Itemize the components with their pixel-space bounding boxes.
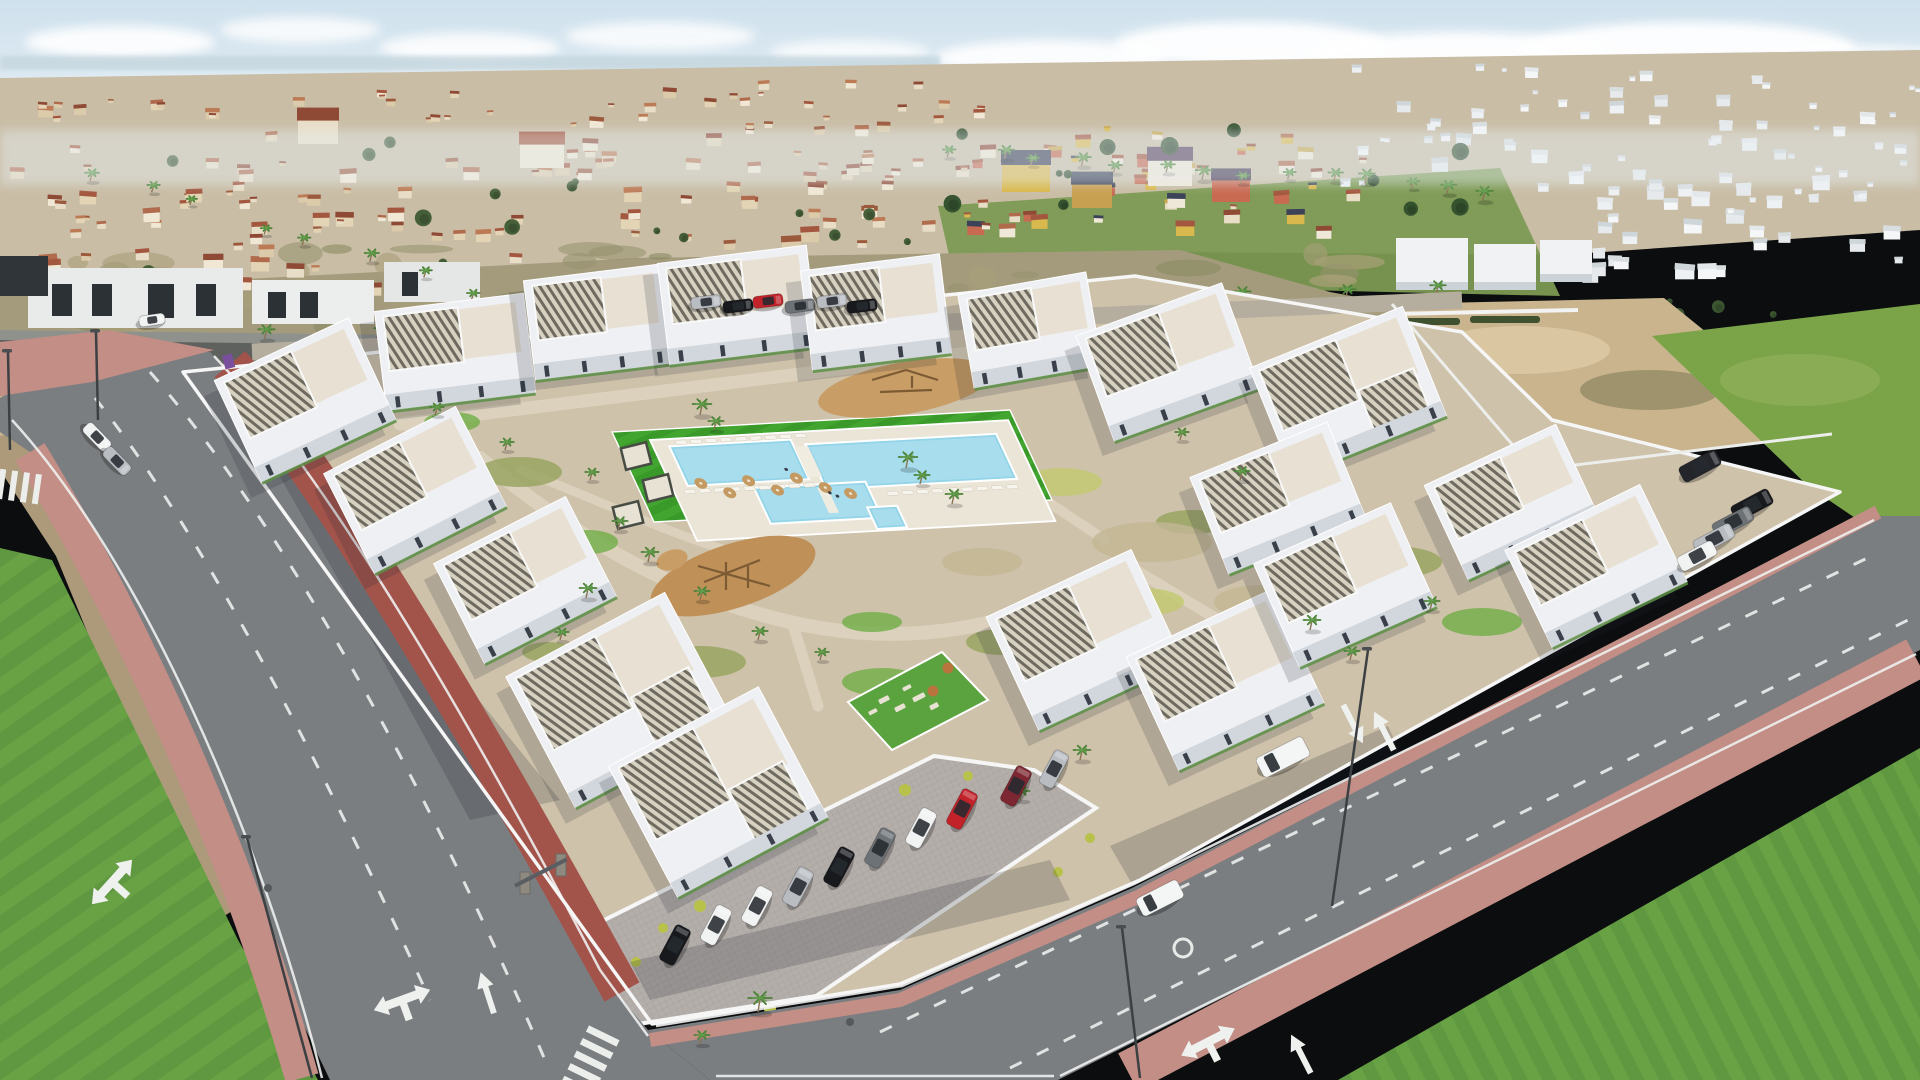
palm-shadow <box>1346 660 1360 665</box>
town-roof <box>1286 209 1305 215</box>
sun-lounger <box>916 489 929 494</box>
road-arrow-straight <box>1284 1031 1319 1077</box>
town-house <box>157 104 164 108</box>
town-house <box>1850 243 1865 252</box>
town-house <box>250 237 262 244</box>
town-roof <box>387 207 404 212</box>
town-house <box>759 84 770 90</box>
hedge <box>1470 316 1540 323</box>
town-house <box>313 217 329 226</box>
sun-lounger <box>758 485 771 490</box>
tree-shade <box>656 230 660 234</box>
town-roof <box>1613 257 1629 262</box>
palm-shadow <box>1236 480 1250 485</box>
town-house <box>1608 216 1618 222</box>
shrub <box>658 923 668 933</box>
town-house <box>978 202 987 207</box>
town-house <box>233 185 244 191</box>
palm-shadow <box>947 504 963 509</box>
warehouse-unit <box>0 256 48 296</box>
sun-lounger <box>779 434 792 439</box>
town-house <box>1814 127 1819 130</box>
streetlight-head <box>1362 647 1372 651</box>
sun-lounger <box>683 489 696 494</box>
sun-lounger <box>886 491 899 496</box>
town-house <box>624 192 641 202</box>
town-roof <box>1691 191 1710 198</box>
town-house <box>298 197 307 202</box>
town-house <box>846 82 856 88</box>
town-roof <box>939 100 950 104</box>
cloud <box>25 26 215 58</box>
town-roof <box>978 199 988 203</box>
town-roof <box>1472 122 1487 127</box>
town-roof <box>81 253 91 256</box>
palm-shadow <box>366 261 379 265</box>
town-roof <box>1756 120 1768 124</box>
town-roof <box>1622 232 1637 237</box>
shrub <box>694 900 706 912</box>
parasol <box>943 663 954 674</box>
palm-shadow <box>1478 200 1494 205</box>
town-roof <box>855 125 869 129</box>
town-roof <box>1629 76 1636 78</box>
scrub-patch <box>1309 274 1357 287</box>
town-roof <box>186 188 203 194</box>
town-house <box>1630 78 1636 81</box>
town-house <box>1176 225 1194 236</box>
town-roof <box>250 197 257 199</box>
parasol <box>928 686 939 697</box>
town-house <box>1795 190 1802 194</box>
town-house <box>1476 66 1484 71</box>
town-house <box>999 228 1015 237</box>
shrub <box>963 771 973 781</box>
town-roof <box>877 122 891 126</box>
town-roof <box>729 93 737 95</box>
town-roof <box>335 212 354 218</box>
town-house <box>609 105 614 108</box>
town-house <box>1698 268 1716 279</box>
town-house <box>386 101 395 106</box>
town-roof <box>313 213 330 218</box>
town-roof <box>1223 210 1240 216</box>
town-roof <box>638 114 648 117</box>
town-roof <box>1397 101 1412 106</box>
town-house <box>1750 229 1764 237</box>
town-house <box>227 192 233 195</box>
palm-shadow <box>149 192 161 196</box>
town-house <box>1767 199 1782 208</box>
town-roof <box>386 99 396 102</box>
manhole <box>264 884 272 892</box>
town-roof <box>764 121 773 124</box>
town-roof <box>226 190 233 192</box>
sun-lounger <box>764 435 777 440</box>
town-roof <box>1883 225 1901 231</box>
town-house <box>645 106 656 112</box>
tree-shade <box>570 184 576 190</box>
town-house <box>180 203 190 209</box>
town-house <box>1521 107 1529 112</box>
town-house <box>392 225 403 232</box>
sun-lounger <box>690 439 703 444</box>
town-house <box>1581 114 1590 119</box>
town-roof <box>1814 126 1820 128</box>
town-house <box>746 125 753 129</box>
town-house <box>293 100 304 106</box>
town-roof <box>1316 226 1332 231</box>
town-roof <box>1352 65 1363 68</box>
scrub-patch <box>322 244 352 253</box>
town-roof <box>391 222 403 226</box>
town-roof <box>337 219 344 221</box>
landmark-house <box>1072 182 1112 208</box>
town-roof <box>1719 120 1733 125</box>
shrub <box>899 784 911 796</box>
town-roof <box>205 108 220 113</box>
cloud <box>220 17 380 43</box>
streetlight-head <box>241 835 251 839</box>
palm-shadow <box>421 278 432 282</box>
town-roof <box>809 209 821 213</box>
town-house <box>964 214 970 217</box>
tree-shade <box>508 223 517 232</box>
palm-shadow <box>817 660 830 664</box>
tree-shade <box>906 240 910 244</box>
palm-shadow <box>696 1044 710 1049</box>
town-roof <box>1833 127 1846 131</box>
town-roof <box>70 229 81 233</box>
town-roof <box>379 95 385 97</box>
town-house <box>476 234 491 243</box>
town-roof <box>1860 112 1876 118</box>
town-roof <box>1167 193 1186 199</box>
town-house <box>287 268 304 278</box>
town-roof <box>293 97 305 101</box>
warehouse-door <box>300 292 318 318</box>
town-house <box>1168 198 1186 208</box>
town-roof <box>1009 213 1021 217</box>
town-house <box>388 212 404 221</box>
sun-lounger <box>931 488 944 493</box>
town-roof <box>800 226 819 233</box>
pool-shallow <box>674 442 805 483</box>
palm-shadow <box>1177 440 1190 444</box>
palm-shadow <box>188 205 198 208</box>
town-house <box>136 253 149 261</box>
town-house <box>1810 105 1817 109</box>
landmark-roof <box>297 108 339 121</box>
town-house <box>1502 69 1506 72</box>
town-roof <box>628 209 641 213</box>
town-house <box>71 232 81 238</box>
town-house <box>1031 219 1047 229</box>
palm-shadow <box>432 415 445 419</box>
town-roof <box>306 194 320 198</box>
town-roof <box>1532 90 1538 92</box>
field-texture <box>1720 354 1880 406</box>
sun-lounger <box>719 437 732 442</box>
sun-lounger <box>743 486 756 491</box>
scrub-patch <box>649 253 672 260</box>
warehouse-door <box>268 292 286 318</box>
town-roof <box>203 254 223 260</box>
town-roof <box>453 230 465 234</box>
town-house <box>1610 90 1623 98</box>
palm-shadow <box>1426 610 1440 615</box>
town-roof <box>741 196 755 201</box>
warehouse-door <box>52 284 72 316</box>
town-house <box>1609 189 1620 195</box>
town-house <box>974 112 985 118</box>
town-house <box>1610 105 1624 113</box>
town-house <box>487 112 492 115</box>
tree-shade <box>798 212 803 217</box>
town-roof <box>377 90 387 93</box>
scrub-patch <box>1303 243 1327 266</box>
scrub-patch <box>558 242 623 257</box>
town-roof <box>450 91 460 94</box>
town-house <box>1858 193 1867 198</box>
town-house <box>824 117 830 120</box>
town-roof <box>1749 197 1756 199</box>
town-roof <box>511 215 523 219</box>
town-roof <box>1558 99 1568 102</box>
town-house <box>307 198 320 206</box>
town-roof <box>934 115 944 118</box>
palm-shadow <box>299 245 311 249</box>
palm-shadow <box>502 450 515 454</box>
town-roof <box>977 106 985 109</box>
palm-shadow <box>750 1011 772 1018</box>
town-house <box>234 245 243 250</box>
sun-lounger <box>675 440 688 445</box>
town-house <box>251 261 269 272</box>
town-roof <box>1610 87 1624 91</box>
town-roof <box>1502 68 1507 69</box>
town-house <box>873 221 885 228</box>
pergola-cabana <box>621 442 652 470</box>
town-house <box>1316 230 1331 239</box>
tree-shade <box>948 199 959 210</box>
town-house <box>742 199 755 207</box>
manhole <box>846 1018 854 1026</box>
town-house <box>1750 199 1756 202</box>
town-house <box>1809 197 1819 203</box>
town-house <box>379 96 384 99</box>
palm-shadow <box>696 600 710 605</box>
town-house <box>628 213 640 220</box>
tree-shade <box>1456 203 1466 213</box>
sun-lounger <box>1006 484 1019 489</box>
villa-face <box>1540 274 1592 282</box>
town-roof <box>1909 85 1915 87</box>
tree-shade <box>419 214 429 224</box>
town-house <box>1347 193 1361 201</box>
streetlight-head <box>1116 925 1126 929</box>
aerial-photograph <box>0 0 1920 1080</box>
town-roof <box>1752 75 1763 78</box>
town-roof <box>973 109 985 113</box>
town-roof <box>1525 67 1539 72</box>
pergola-roof <box>532 277 607 340</box>
town-roof <box>233 243 243 246</box>
town-roof <box>1727 208 1734 210</box>
town-roof <box>1762 82 1771 85</box>
town-house <box>1533 91 1538 94</box>
town-roof <box>1175 220 1194 226</box>
town-roof <box>1697 263 1716 269</box>
tree-shade <box>682 236 688 242</box>
town-roof <box>311 265 319 268</box>
sun-lounger <box>991 485 1004 490</box>
town-house <box>74 108 86 115</box>
palm-shadow <box>581 598 597 603</box>
town-roof <box>823 116 830 118</box>
town-house <box>1895 259 1903 264</box>
town-roof <box>1894 257 1903 260</box>
warehouse-door <box>402 272 418 296</box>
town-house <box>1623 236 1637 244</box>
tree-shade <box>832 233 839 240</box>
garden-bed <box>1442 608 1522 636</box>
palm-shadow <box>710 430 724 435</box>
town-roof <box>1430 118 1441 122</box>
town-house <box>454 233 465 240</box>
town-roof <box>286 263 304 269</box>
town-house <box>1397 104 1410 112</box>
town-house <box>53 118 60 122</box>
palm-shadow <box>1443 193 1457 197</box>
palm-shadow <box>262 235 272 238</box>
sun-lounger <box>794 433 807 438</box>
town-roof <box>1346 189 1361 194</box>
pergola-roof <box>383 307 464 371</box>
town-roof <box>1639 71 1652 75</box>
town-house <box>143 213 159 223</box>
town-house <box>724 243 735 250</box>
palm-shadow <box>754 640 768 645</box>
streetlight-head <box>90 329 100 333</box>
town-roof <box>1104 126 1111 128</box>
shrub <box>1085 833 1095 843</box>
town-house <box>898 107 906 112</box>
town-house <box>639 116 648 121</box>
streetlight-head <box>2 349 12 353</box>
town-roof <box>250 234 263 238</box>
town-house <box>934 118 943 123</box>
garden-bed <box>942 548 1022 576</box>
town-roof <box>157 102 165 105</box>
palm-shadow <box>614 530 628 535</box>
pool-area <box>650 420 1055 541</box>
town-roof <box>259 244 275 249</box>
tree-shade <box>1772 313 1776 317</box>
scrub-patch <box>1156 260 1221 277</box>
villa-face <box>1474 282 1536 290</box>
town-house <box>495 231 503 236</box>
town-roof <box>781 235 802 242</box>
town-roof <box>608 103 614 105</box>
palm-shadow <box>900 467 918 473</box>
tree-shade <box>867 212 874 219</box>
town-house <box>923 224 936 231</box>
town-house <box>76 218 85 223</box>
atmospheric-haze <box>0 130 1920 185</box>
palm-shadow <box>1075 760 1091 765</box>
town-roof <box>1749 225 1764 230</box>
cloud <box>565 22 755 50</box>
town-house <box>1655 99 1668 107</box>
scrub-patch <box>278 242 323 265</box>
town-roof <box>398 186 412 191</box>
town-house <box>858 243 867 248</box>
sun-lounger <box>901 490 914 495</box>
town-house <box>1754 243 1767 251</box>
town-house <box>1274 195 1289 204</box>
town-house <box>1728 210 1734 214</box>
warehouse-door <box>92 284 112 316</box>
town-house <box>1558 102 1567 107</box>
town-roof <box>964 212 971 214</box>
town-house <box>1593 251 1605 258</box>
palm-shadow <box>916 484 930 489</box>
town-roof <box>108 99 114 101</box>
town-house <box>1909 87 1914 90</box>
town-house <box>314 228 321 232</box>
town-house <box>801 232 819 243</box>
town-roof <box>209 113 216 115</box>
warehouse-door <box>196 284 216 316</box>
palm-shadow <box>557 640 570 644</box>
town-house <box>312 267 319 271</box>
town-house <box>759 93 763 96</box>
sun-lounger <box>698 488 711 493</box>
town-roof <box>823 217 837 222</box>
tree-shade <box>1408 205 1417 214</box>
town-roof <box>914 82 924 85</box>
town-roof <box>1023 211 1036 216</box>
sun-lounger <box>734 437 747 442</box>
palm-shadow <box>643 562 659 567</box>
town-house <box>730 95 737 99</box>
sun-lounger <box>803 483 816 488</box>
town-house <box>571 124 576 127</box>
town-roof <box>857 240 867 243</box>
town-roof <box>623 186 642 193</box>
sun-lounger <box>961 487 974 492</box>
town-house <box>740 100 749 106</box>
palm-shadow <box>1305 630 1321 635</box>
sun-lounger <box>788 483 801 488</box>
sun-lounger <box>749 436 762 441</box>
town-roof <box>898 104 907 107</box>
pergola-cabana <box>643 474 674 502</box>
town-roof <box>509 253 522 258</box>
town-house <box>765 123 773 128</box>
town-house <box>1309 185 1317 190</box>
town-house <box>1778 236 1790 243</box>
town-roof <box>1093 215 1103 218</box>
town-roof <box>1849 239 1865 244</box>
town-house <box>1736 187 1751 196</box>
garden-bed <box>842 612 902 632</box>
town-house <box>1287 214 1304 224</box>
sun-lounger <box>976 486 989 491</box>
palm-shadow <box>1409 189 1421 193</box>
town-house <box>809 211 820 217</box>
